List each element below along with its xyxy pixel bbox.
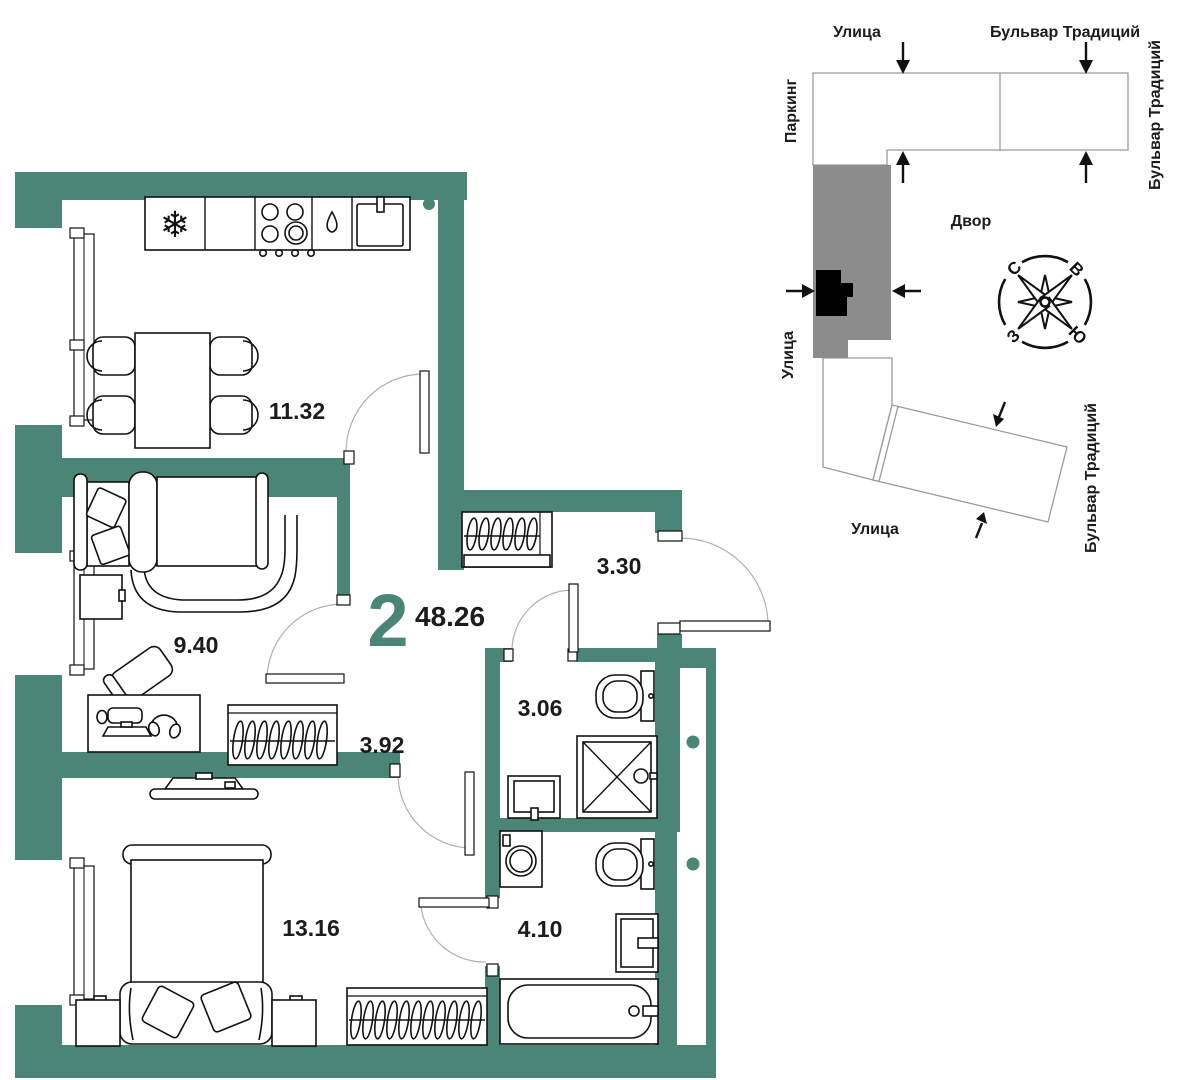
bathtub <box>500 979 658 1044</box>
unit-room-count: 2 <box>367 579 408 662</box>
sink-cabinet <box>616 914 658 972</box>
area-living: 9.40 <box>174 632 219 658</box>
door-bathroom-large <box>419 896 498 976</box>
area-corridor: 3.92 <box>360 732 405 758</box>
toilet-large-bath <box>596 839 654 889</box>
floorplan-page: ❄ <box>0 0 1188 1080</box>
area-bedroom: 13.16 <box>282 915 340 941</box>
window-kitchen <box>70 228 94 426</box>
site-building-angled <box>873 405 1067 522</box>
label-street-left: Улица <box>780 331 797 379</box>
vent-dot-kitchen <box>423 198 435 210</box>
label-street-bottom: Улица <box>851 521 899 538</box>
wardrobe-bedroom <box>347 988 487 1045</box>
site-building-gray <box>813 165 891 358</box>
area-bathroom-large: 4.10 <box>518 916 563 942</box>
riser-dot-2 <box>687 858 700 871</box>
dining-table <box>87 333 258 448</box>
apartment-walls <box>15 172 716 1078</box>
riser-dot-1 <box>687 736 700 749</box>
kitchen-sink <box>357 197 403 246</box>
sink-small-bath <box>508 776 560 820</box>
window-bedroom <box>70 858 94 1005</box>
door-entrance <box>658 531 770 634</box>
bed <box>120 845 272 1044</box>
compass-west: З <box>1003 326 1024 347</box>
nightstand-left <box>76 996 120 1046</box>
site-building-bar <box>813 73 1128 165</box>
wardrobe-corridor <box>228 705 337 765</box>
door-bedroom <box>390 764 474 855</box>
desk <box>88 695 200 752</box>
toilet-small-bath <box>596 671 654 721</box>
door-living <box>266 595 350 683</box>
label-parking: Паркинг <box>783 78 800 143</box>
unit-total-area: 48.26 <box>415 601 485 632</box>
floorplan-canvas: ❄ <box>0 0 1188 1080</box>
label-street-top: Улица <box>833 24 881 41</box>
door-kitchen <box>344 371 429 464</box>
label-boulevard-bottom-right: Бульвар Традиций <box>1083 403 1100 553</box>
washing-machine <box>500 831 542 887</box>
label-boulevard-top: Бульвар Традиций <box>990 24 1140 41</box>
label-courtyard: Двор <box>951 213 992 230</box>
side-table <box>80 575 125 619</box>
wardrobe-hallway <box>462 512 552 567</box>
svg-text:❄: ❄ <box>160 204 190 245</box>
fridge-icon: ❄ <box>160 204 190 245</box>
label-boulevard-right: Бульвар Традиций <box>1147 40 1164 190</box>
site-plan: С В З Ю Улица Бульвар Традиций Паркинг Б… <box>780 24 1164 553</box>
area-kitchen: 11.32 <box>269 398 325 424</box>
shower <box>577 736 657 818</box>
area-bathroom-small: 3.06 <box>518 695 563 721</box>
compass-rose: С В З Ю <box>999 256 1091 348</box>
door-bathroom-small <box>504 584 578 661</box>
area-hallway: 3.30 <box>597 553 642 579</box>
nightstand-right <box>272 996 316 1046</box>
compass-north: С <box>1003 257 1025 279</box>
